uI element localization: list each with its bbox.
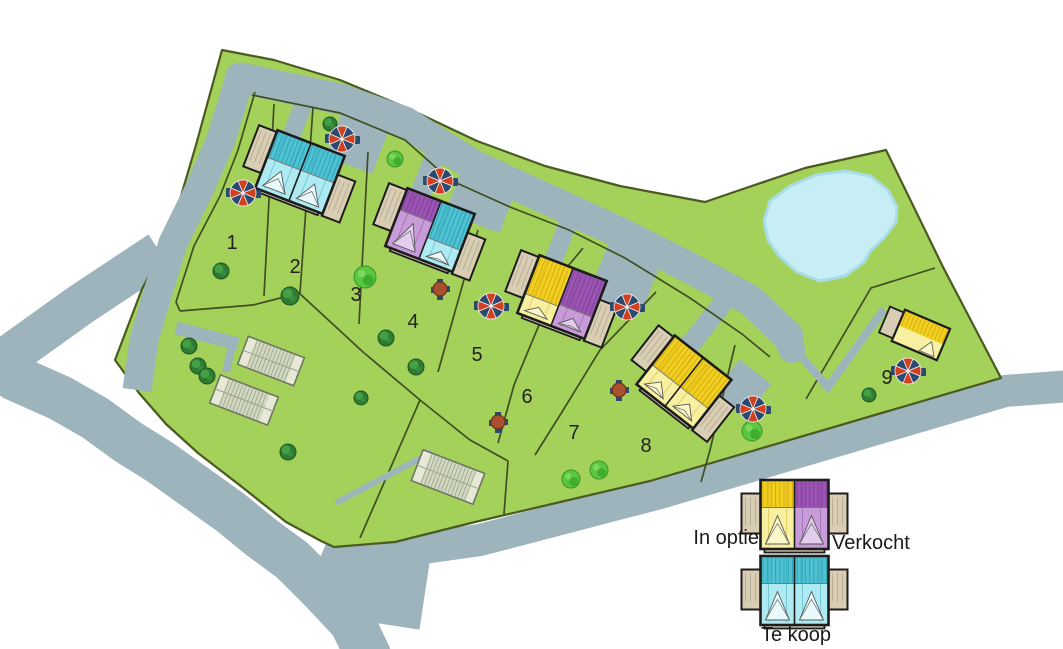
svg-text:Te koop: Te koop [761, 624, 831, 646]
svg-text:1: 1 [226, 232, 237, 254]
svg-text:5: 5 [471, 344, 482, 366]
svg-text:Verkocht: Verkocht [832, 532, 910, 554]
svg-text:4: 4 [407, 311, 418, 333]
svg-text:3: 3 [350, 284, 361, 306]
svg-text:9: 9 [881, 367, 892, 389]
svg-text:8: 8 [640, 435, 651, 457]
svg-text:7: 7 [568, 422, 579, 444]
svg-text:2: 2 [289, 256, 300, 278]
svg-text:In optie: In optie [693, 527, 759, 549]
svg-text:6: 6 [521, 386, 532, 408]
